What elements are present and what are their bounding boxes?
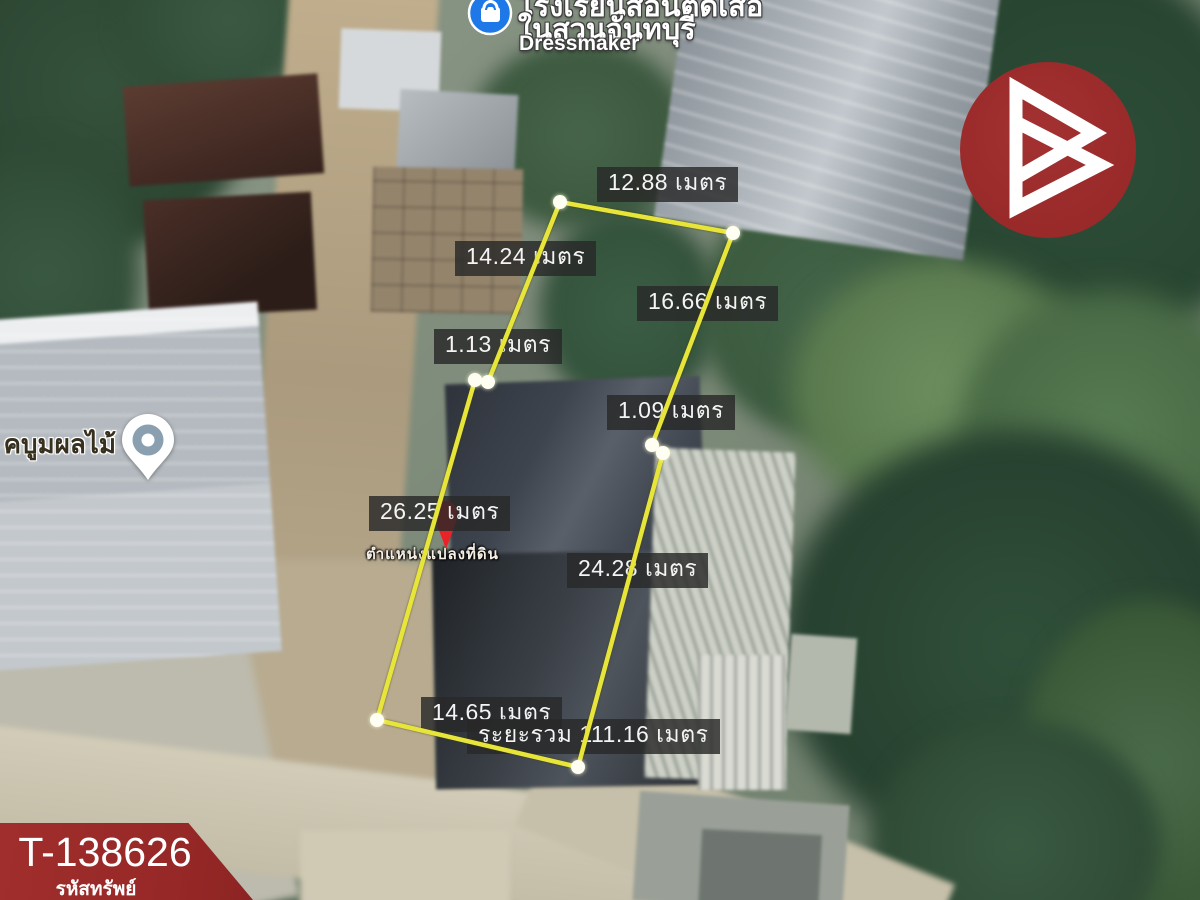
map-pin-icon[interactable] bbox=[122, 414, 174, 480]
poi-top-subtitle[interactable]: Dressmaker bbox=[519, 32, 639, 56]
double-triangle-b-icon bbox=[960, 62, 1136, 238]
poi-left-name[interactable]: คบูมผลไม้ bbox=[0, 424, 116, 465]
property-map-screenshot: 12.88 เมตร14.24 เมตร16.66 เมตร1.13 เมตร1… bbox=[0, 0, 1200, 900]
brand-logo bbox=[960, 62, 1136, 238]
property-code-caption: รหัสทรัพย์ bbox=[0, 874, 192, 900]
shopping-bag-icon[interactable] bbox=[469, 0, 511, 34]
property-code: T-138626 bbox=[0, 832, 210, 873]
